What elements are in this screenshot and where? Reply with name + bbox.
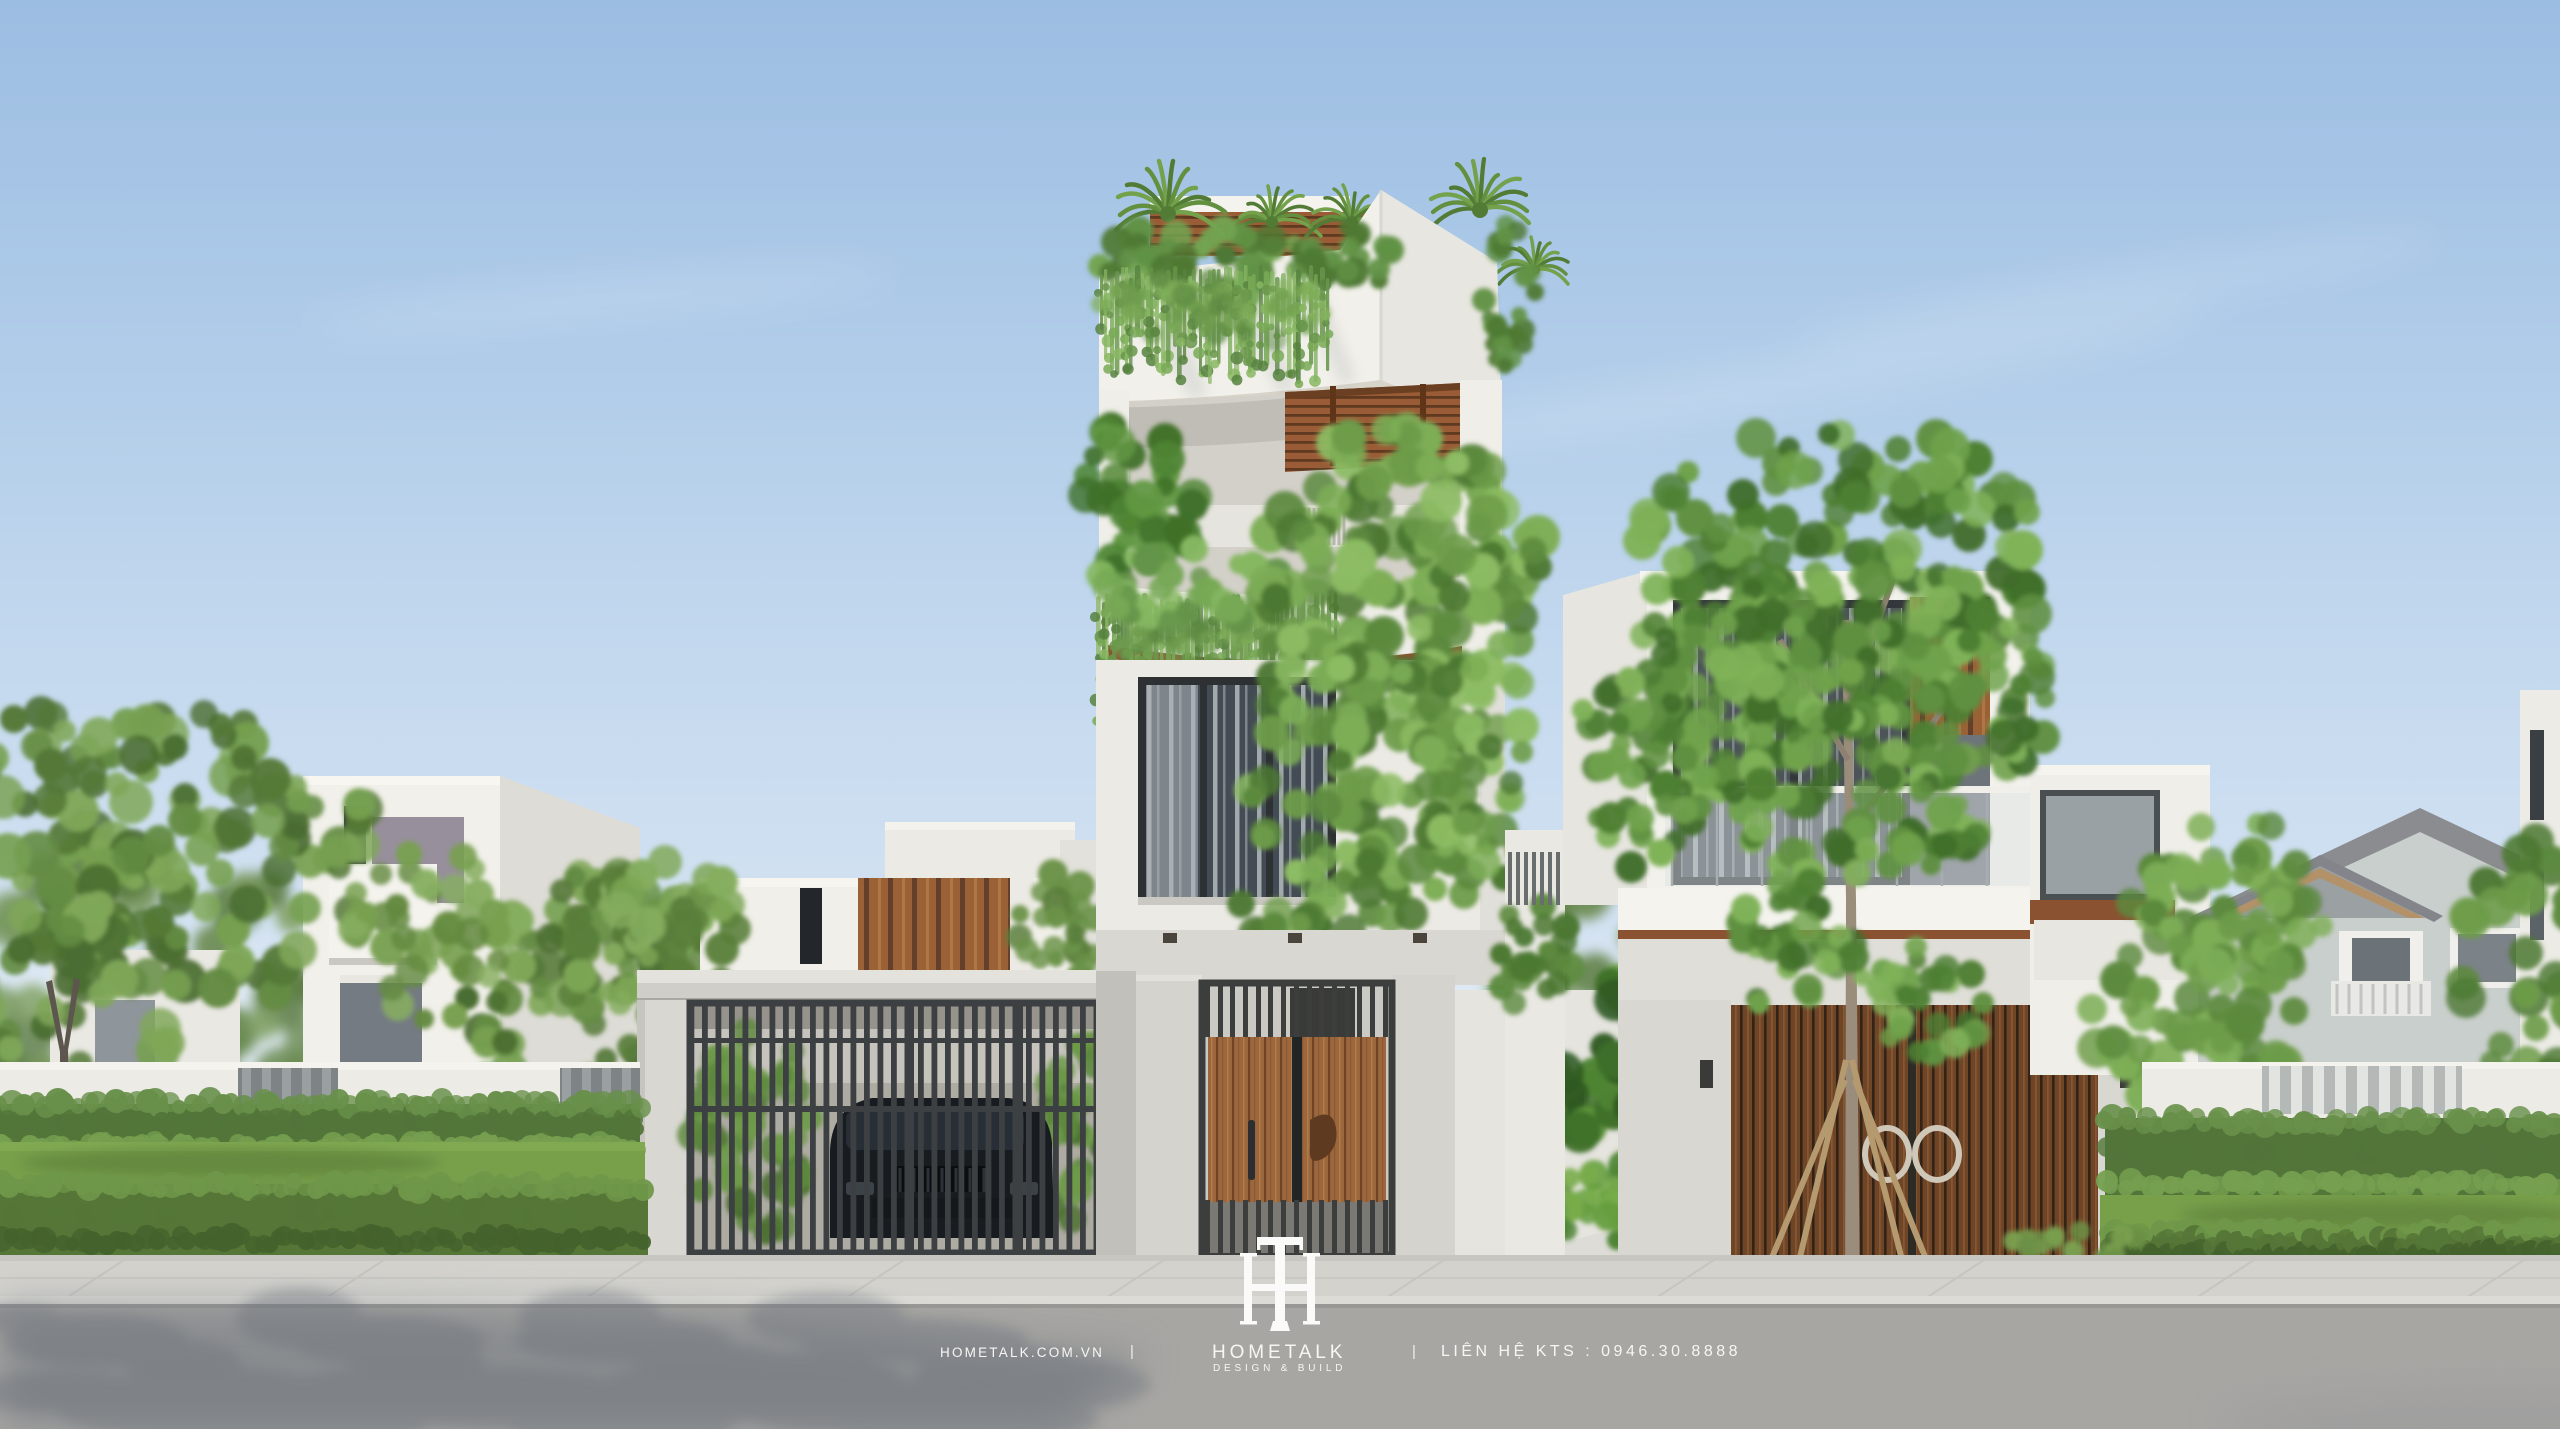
svg-text:|: | (1412, 1343, 1416, 1360)
svg-text:DESIGN & BUILD: DESIGN & BUILD (1213, 1363, 1346, 1374)
svg-text:HOMETALK: HOMETALK (1212, 1342, 1346, 1363)
svg-text:LIÊN HỆ KTS : 0946.30.8888: LIÊN HỆ KTS : 0946.30.8888 (1441, 1341, 1741, 1360)
svg-text:HOMETALK.COM.VN: HOMETALK.COM.VN (940, 1345, 1104, 1360)
svg-text:|: | (1130, 1343, 1134, 1360)
